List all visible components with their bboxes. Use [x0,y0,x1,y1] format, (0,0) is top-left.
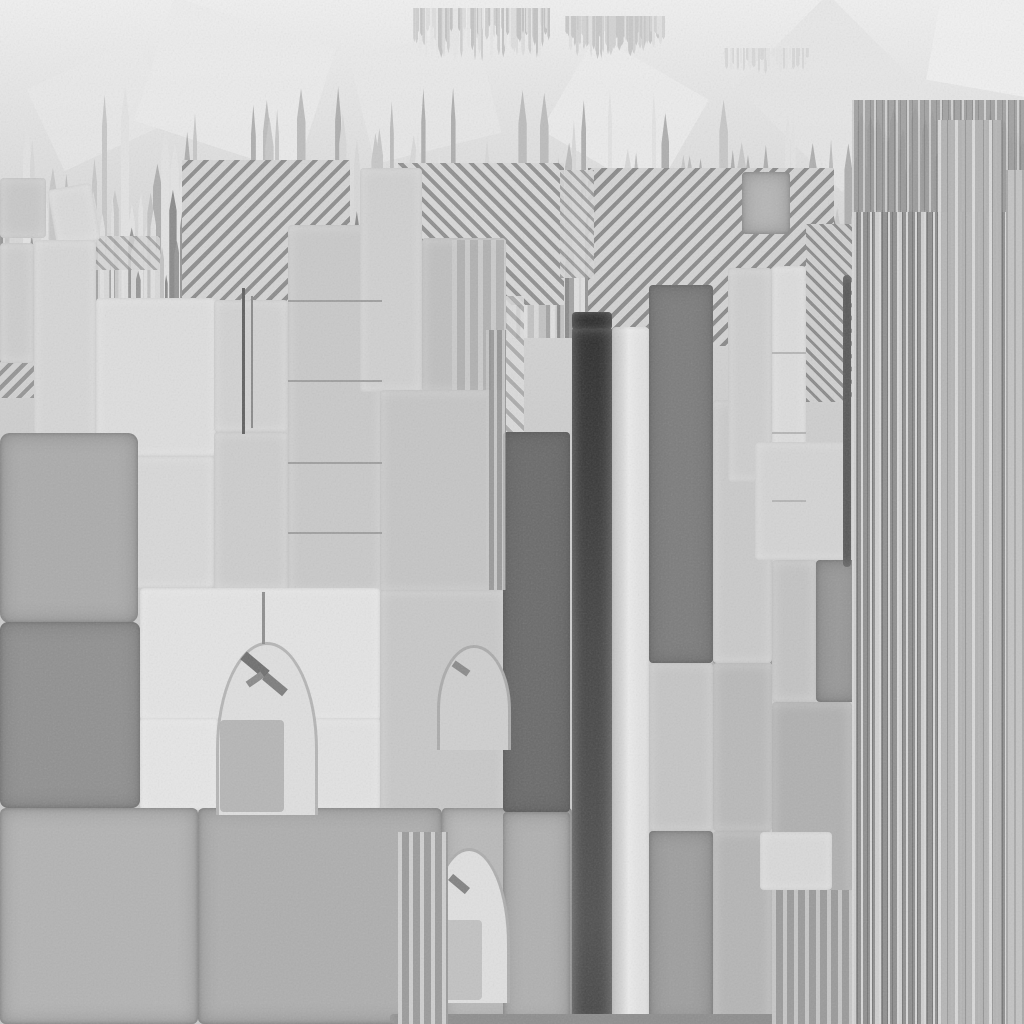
glitch-strip-center [486,330,506,590]
barcode-right-edge [1006,170,1024,1024]
glitch-strip-bottom-right [772,890,852,1024]
grayscale-texture-image [0,0,1024,1024]
vertical-stripe-layer [0,0,1024,1024]
barcode-light-band [938,120,1002,1024]
glitch-strip-arch3 [398,832,448,1024]
